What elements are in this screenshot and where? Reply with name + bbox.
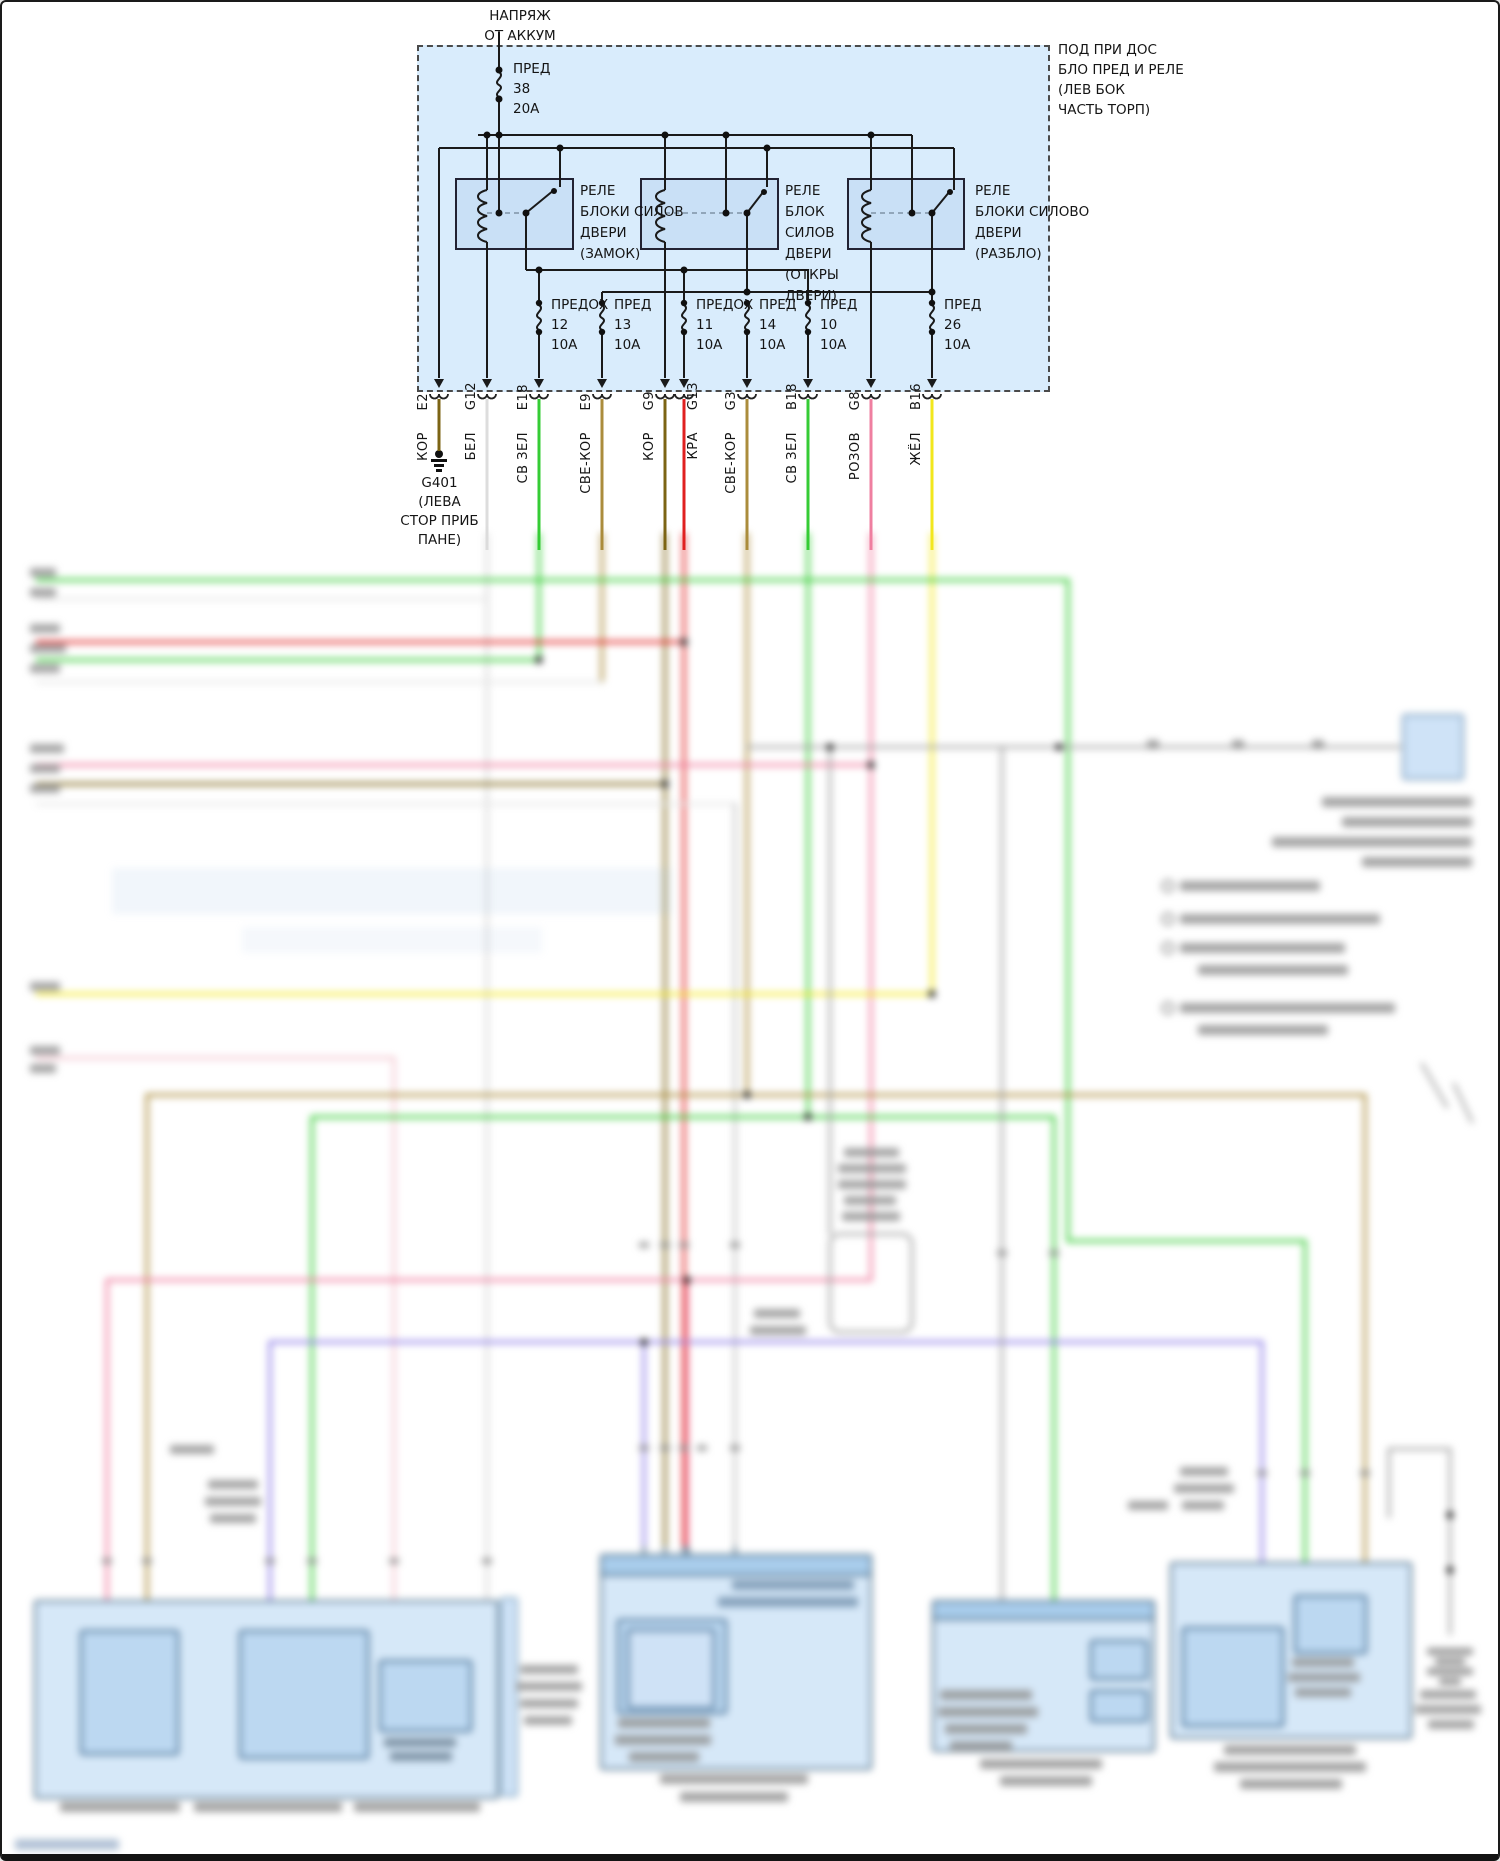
blurred-text: [1427, 1668, 1473, 1675]
fuse-label: ПРЕДОХ1210А: [551, 295, 608, 355]
blurred-text: [142, 1558, 152, 1564]
blurred-text: [30, 1046, 60, 1055]
relay-label-lock: РЕЛЕ БЛОКИ СИЛОВ ДВЕРИ (ЗАМОК): [580, 181, 684, 265]
pin-label: B18: [785, 383, 800, 410]
component-header-band: [600, 1554, 872, 1576]
pin-label: G3: [724, 391, 739, 410]
blurred-text: [1427, 1648, 1473, 1655]
blurred-text: [838, 1180, 906, 1189]
blurred-text: [242, 927, 542, 953]
switch-subbox: [80, 1630, 179, 1755]
switch-subbox: [239, 1630, 369, 1759]
blurred-text: [1049, 1250, 1059, 1256]
blurred-text: [980, 1759, 1102, 1769]
blurred-text: [1342, 817, 1472, 827]
blurred-text: [1415, 1705, 1481, 1714]
wire-color-label: КОР: [416, 432, 431, 461]
blurred-text: [750, 1326, 806, 1335]
blurred-text: [950, 1741, 1012, 1751]
blurred-text: [615, 1735, 711, 1745]
fuse-label: ПРЕД1010А: [820, 295, 857, 355]
blurred-text: [679, 1445, 689, 1451]
motor-subbox: [1294, 1595, 1367, 1654]
schematic-linework-top: [2, 2, 1500, 562]
blurred-text: [1180, 1003, 1395, 1013]
blurred-text: [1257, 1470, 1267, 1476]
blurred-text: [1174, 1484, 1234, 1493]
fuse-label: ПРЕДОХ1110А: [696, 295, 753, 355]
blurred-text: [1180, 1467, 1228, 1476]
blurred-text: [516, 1682, 582, 1691]
fuse-label: ПРЕД2610А: [944, 295, 981, 355]
relay-label-open: РЕЛЕ БЛОК СИЛОВ ДВЕРИ (ОТКРЫ ДВЕРИ): [785, 181, 839, 307]
blurred-text: [618, 1718, 710, 1728]
blurred-text: [1214, 1762, 1366, 1772]
blurred-text: [1322, 797, 1472, 807]
blurred-text: [1362, 857, 1472, 867]
pin-label: G13: [686, 382, 701, 410]
blurred-text: [1198, 1025, 1328, 1035]
blurred-text: [384, 1738, 456, 1747]
pin-label: B16: [909, 383, 924, 410]
blurred-text: [354, 1802, 480, 1812]
blurred-text: [1428, 1720, 1474, 1729]
blurred-text: [265, 1558, 275, 1564]
inline-connector-box: [1402, 714, 1464, 780]
pin-label: E9: [579, 393, 594, 411]
blurred-text: [389, 1558, 399, 1564]
blurred-text: [680, 1792, 788, 1802]
blurred-text: [997, 1250, 1007, 1256]
blurred-text: [660, 1242, 670, 1248]
blurred-text: [1180, 943, 1345, 953]
blurred-text: [30, 568, 56, 577]
battery-voltage-label: НАПРЯЖ ОТ АККУМ: [450, 6, 590, 46]
side-strip-box: [500, 1597, 518, 1797]
switch-subbox: [1182, 1627, 1284, 1727]
blurred-text: [842, 1212, 900, 1221]
wire-color-label: РОЗОВ: [848, 432, 863, 480]
blurred-text: [1000, 1776, 1092, 1786]
blurred-text: [1224, 1745, 1356, 1755]
blurred-text: [112, 868, 672, 914]
blurred-text: [30, 744, 64, 753]
blurred-text: [1360, 1470, 1370, 1476]
blurred-text: [639, 1445, 649, 1451]
blurred-text: [697, 1445, 707, 1451]
motor-subbox: [379, 1660, 472, 1732]
blurred-text: [194, 1802, 342, 1812]
component-header-band: [932, 1600, 1155, 1620]
wire-color-label: СВЕ-КОР: [579, 432, 594, 494]
blurred-text: [30, 784, 60, 793]
blurred-text: [938, 1707, 1038, 1717]
blurred-text: [1232, 740, 1244, 749]
fuse-label: ПРЕД1310А: [614, 295, 651, 355]
wire-color-label: СВ ЗЕЛ: [785, 432, 800, 483]
blurred-text: [1439, 1678, 1461, 1685]
blurred-text: [732, 1580, 854, 1590]
blurred-text: [1182, 1501, 1224, 1510]
pin-label: G9: [642, 391, 657, 410]
switch-subbox-inner: [627, 1629, 715, 1709]
blurred-text: [1300, 1470, 1310, 1476]
blurred-text: [520, 1665, 578, 1674]
blurred-text: [520, 1699, 578, 1708]
blurred-text: [754, 1309, 800, 1318]
blurred-text: [208, 1480, 258, 1489]
blurred-text: [482, 1558, 492, 1564]
subbox: [1090, 1640, 1148, 1680]
blurred-diagram-region: [2, 530, 1500, 1861]
blurred-text: [1288, 1673, 1360, 1682]
pin-label: E2: [416, 393, 431, 411]
blurred-text: [1180, 881, 1320, 891]
blurred-text: [730, 1242, 740, 1248]
blurred-text: [1128, 1501, 1168, 1510]
blurred-text: [390, 1752, 452, 1761]
pin-label: G12: [464, 382, 479, 410]
blurred-text: [30, 624, 60, 633]
blurred-text: [30, 764, 60, 773]
blurred-text: [660, 1774, 808, 1784]
blurred-text: [679, 1242, 689, 1248]
blurred-text: [1240, 1779, 1342, 1789]
blurred-text: [102, 1558, 112, 1564]
blurred-text: [1272, 837, 1472, 847]
blurred-text: [660, 1445, 670, 1451]
blurred-text: [945, 1724, 1027, 1734]
blurred-text: [1198, 965, 1348, 975]
blurred-text: [629, 1752, 699, 1762]
wire-color-label: КОР: [642, 432, 657, 461]
pin-label: E18: [516, 384, 531, 410]
blurred-text: [1180, 914, 1380, 924]
pin-label: G8: [848, 391, 863, 410]
blurred-text: [1295, 1688, 1351, 1697]
main-fuse-label: ПРЕД3820А: [513, 59, 550, 119]
blurred-text: [30, 588, 56, 597]
blurred-text: [205, 1497, 261, 1506]
blurred-text: [210, 1514, 256, 1523]
blurred-text: [1312, 740, 1324, 749]
blurred-text: [524, 1716, 572, 1725]
fuse-label: ПРЕД1410А: [759, 295, 796, 355]
blurred-text: [30, 982, 60, 991]
blurred-text: [1147, 740, 1159, 749]
wire-color-label: БЕЛ: [464, 432, 479, 460]
wire-color-label: СВ ЗЕЛ: [516, 432, 531, 483]
blurred-text: [30, 644, 66, 653]
blurred-text: [718, 1597, 858, 1607]
blurred-text: [30, 1064, 56, 1073]
blurred-text: [1435, 1658, 1465, 1665]
wire-color-label: КРА: [686, 432, 701, 459]
blurred-text: [940, 1690, 1032, 1700]
relay-label-unlock: РЕЛЕ БЛОКИ СИЛОВО ДВЕРИ (РАЗБЛО): [975, 181, 1089, 265]
blurred-text: [30, 664, 60, 673]
blurred-text: [838, 1164, 906, 1173]
fusebox-location-label: ПОД ПРИ ДОС БЛО ПРЕД И РЕЛЕ (ЛЕВ БОК ЧАС…: [1058, 40, 1238, 120]
wiring-diagram-page: НАПРЯЖ ОТ АККУМ ПОД ПРИ ДОС БЛО ПРЕД И Р…: [0, 0, 1500, 1861]
blurred-text: [730, 1445, 740, 1451]
subbox: [1090, 1690, 1148, 1722]
wire-color-label: СВЕ-КОР: [724, 432, 739, 494]
blurred-text: [307, 1558, 317, 1564]
blurred-text: [639, 1242, 649, 1248]
blurred-text: [1292, 1658, 1354, 1667]
blurred-text: [170, 1445, 214, 1454]
blurred-text: [1420, 1690, 1476, 1699]
blurred-text: [844, 1196, 896, 1205]
wire-color-label: ЖЁЛ: [909, 432, 924, 466]
blurred-text: [15, 1839, 119, 1850]
blurred-text: [844, 1148, 899, 1157]
blurred-text: [60, 1802, 180, 1812]
